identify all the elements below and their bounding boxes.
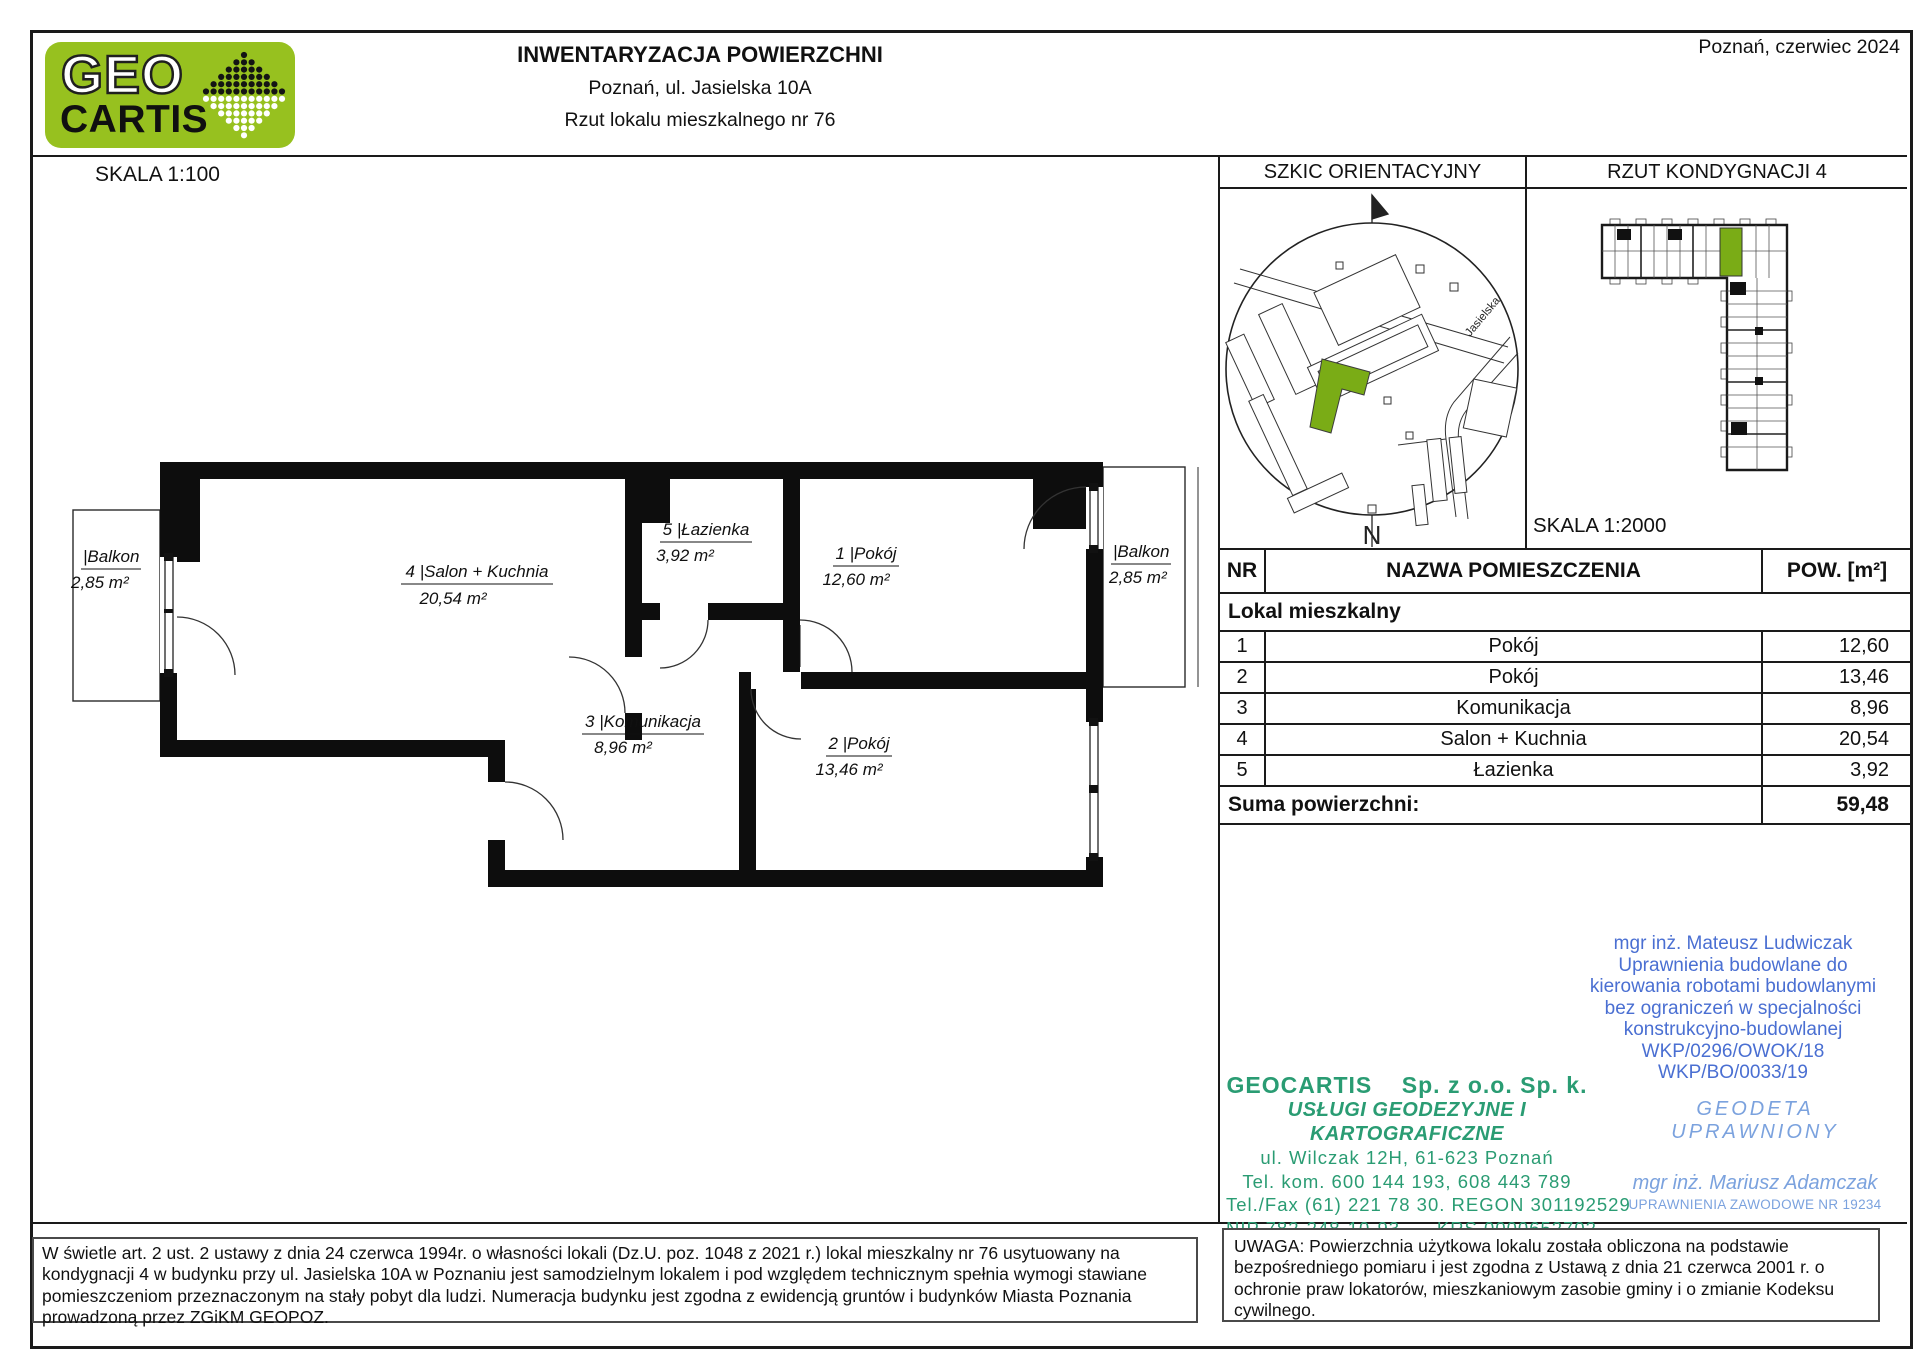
orientation-sketch: Jasielska N <box>1218 187 1525 548</box>
surveyor-stamp: GEODETA UPRAWNIONY mgr inż. Mariusz Adam… <box>1628 1098 1882 1212</box>
col-header-name: NAZWA POMIESZCZENIA <box>1265 549 1762 593</box>
doc-date: Poznań, czerwiec 2024 <box>1480 36 1900 59</box>
document-page: GEO CARTIS INWENTARYZACJA POWIERZCHNI <box>0 0 1920 1358</box>
company-line: Tel. kom. 600 144 193, 608 443 789 <box>1226 1170 1588 1194</box>
area-balkon-right: 2,85 m² <box>1108 568 1168 587</box>
engineer-line: bez ograniczeń w specjalności <box>1563 998 1903 1020</box>
table-row: 2 Pokój 13,46 <box>1219 662 1912 693</box>
engineer-line: konstrukcyjno-budowlanej <box>1563 1019 1903 1041</box>
company-stamp: GEOCARTIS Sp. z o.o. Sp. k. USŁUGI GEODE… <box>1226 1072 1588 1240</box>
label-komunikacja: 3 |Komunikacja <box>585 712 701 731</box>
surveyor-name: mgr inż. Mariusz Adamczak <box>1628 1172 1882 1195</box>
engineer-credentials-stamp: mgr inż. Mateusz Ludwiczak Uprawnienia b… <box>1563 933 1903 1084</box>
room-area-table: NR NAZWA POMIESZCZENIA POW. [m²] Lokal m… <box>1218 548 1913 825</box>
label-balkon-right: |Balkon <box>1113 542 1169 561</box>
logo-text-geo: GEO <box>61 44 184 106</box>
company-name: GEOCARTIS Sp. z o.o. Sp. k. <box>1226 1072 1588 1098</box>
table-group-row: Lokal mieszkalny <box>1219 593 1912 631</box>
north-letter: N <box>1363 520 1382 548</box>
table-sum-row: Suma powierzchni: 59,48 <box>1219 786 1912 824</box>
address-subtitle: Poznań, ul. Jasielska 10A <box>350 77 1050 100</box>
sketch-panel-title: SZKIC ORIENTACYJNY <box>1220 157 1525 187</box>
company-line: ul. Wilczak 12H, 61-623 Poznań <box>1226 1146 1588 1170</box>
engineer-line: WKP/BO/0033/19 <box>1563 1062 1903 1084</box>
area-pokoj2: 13,46 m² <box>815 760 883 779</box>
geocartis-logo: GEO CARTIS <box>45 42 295 148</box>
table-row: 4 Salon + Kuchnia 20,54 <box>1219 724 1912 755</box>
table-row: 1 Pokój 12,60 <box>1219 631 1912 662</box>
page-title: INWENTARYZACJA POWIERZCHNI <box>350 42 1050 68</box>
surveyor-title: GEODETA UPRAWNIONY <box>1628 1098 1882 1144</box>
floor-panel-title: RZUT KONDYGNACJI 4 <box>1527 157 1907 187</box>
apartment-floor-plan: 4 |Salon + Kuchnia 20,54 m² 5 |Łazienka … <box>33 157 1218 1222</box>
engineer-line: mgr inż. Mateusz Ludwiczak <box>1563 933 1903 955</box>
engineer-line: WKP/0296/OWOK/18 <box>1563 1041 1903 1063</box>
col-header-area: POW. [m²] <box>1762 549 1912 593</box>
storey-building <box>1602 219 1792 470</box>
label-balkon-left: |Balkon <box>83 547 139 566</box>
area-pokoj1: 12,60 m² <box>822 570 890 589</box>
engineer-line: Uprawnienia budowlane do <box>1563 955 1903 977</box>
area-lazienka: 3,92 m² <box>656 546 715 565</box>
area-komunikacja: 8,96 m² <box>594 738 653 757</box>
table-header-row: NR NAZWA POMIESZCZENIA POW. [m²] <box>1219 549 1912 593</box>
doc-type-subtitle: Rzut lokalu mieszkalnego nr 76 <box>350 109 1050 132</box>
label-lazienka: 5 |Łazienka <box>663 520 750 539</box>
label-pokoj1: 1 |Pokój <box>835 544 897 563</box>
legal-note: W świetle art. 2 ust. 2 ustawy z dnia 24… <box>32 1237 1198 1323</box>
area-balkon-left: 2,85 m² <box>70 573 130 592</box>
uwaga-note: UWAGA: Powierzchnia użytkowa lokalu zost… <box>1222 1228 1880 1322</box>
highlighted-unit <box>1720 228 1742 276</box>
logo-diamond-icon <box>201 49 287 141</box>
area-salon: 20,54 m² <box>418 589 487 608</box>
walls <box>160 462 1103 887</box>
document-title-block: INWENTARYZACJA POWIERZCHNI Poznań, ul. J… <box>350 42 1050 132</box>
table-row: 5 Łazienka 3,92 <box>1219 755 1912 786</box>
company-tagline: USŁUGI GEODEZYJNE I KARTOGRAFICZNE <box>1226 1098 1588 1146</box>
logo-text-cartis: CARTIS <box>60 98 208 142</box>
col-header-nr: NR <box>1219 549 1265 593</box>
storey-scale-label: SKALA 1:2000 <box>1533 514 1666 538</box>
engineer-line: kierowania robotami budowlanymi <box>1563 976 1903 998</box>
label-pokoj2: 2 |Pokój <box>827 734 890 753</box>
footer-divider <box>30 1222 1907 1224</box>
sum-label: Suma powierzchni: <box>1219 786 1762 824</box>
storey-plan <box>1525 187 1908 548</box>
label-salon: 4 |Salon + Kuchnia <box>406 562 549 581</box>
surveyor-license: UPRAWNIENIA ZAWODOWE NR 19234 <box>1628 1197 1882 1212</box>
group-label: Lokal mieszkalny <box>1219 593 1912 631</box>
table-row: 3 Komunikacja 8,96 <box>1219 693 1912 724</box>
company-line: Tel./Fax (61) 221 78 30. REGON 301192529 <box>1226 1193 1588 1217</box>
sum-value: 59,48 <box>1762 786 1912 824</box>
